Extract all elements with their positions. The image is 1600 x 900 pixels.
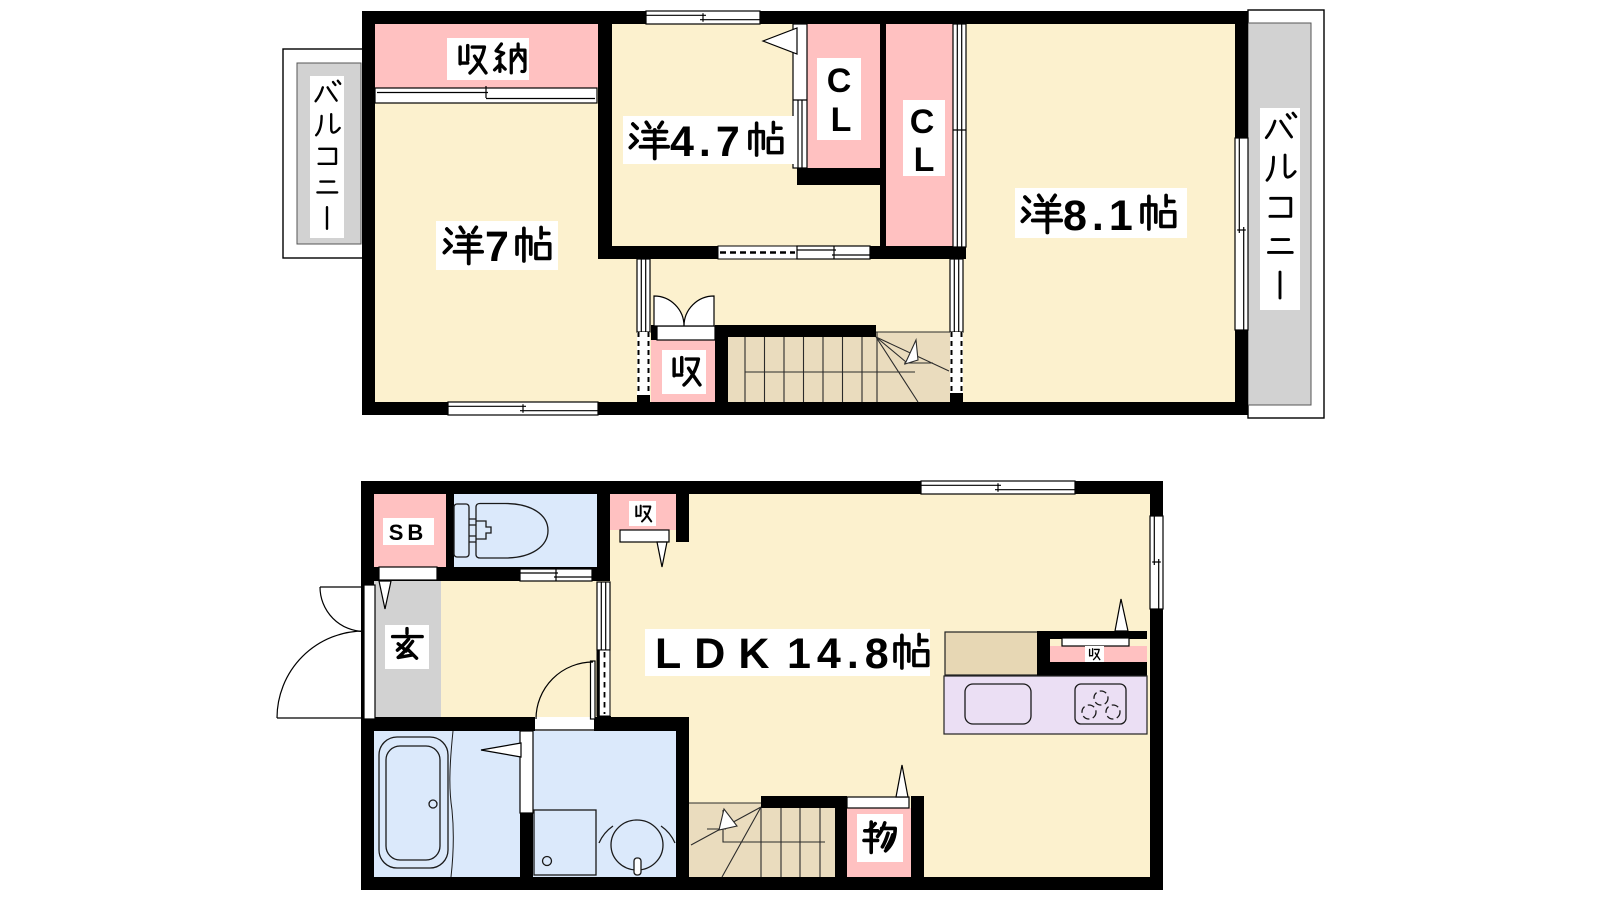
svg-text:L: L — [831, 101, 852, 139]
svg-text:14.8: 14.8 — [787, 630, 895, 678]
svg-text:SB: SB — [389, 520, 428, 545]
svg-text:C: C — [827, 62, 852, 100]
svg-text:LDK: LDK — [655, 630, 782, 678]
svg-text:C: C — [910, 103, 935, 141]
svg-text:7: 7 — [485, 223, 509, 271]
svg-text:8.1: 8.1 — [1063, 192, 1138, 240]
svg-text:4.7: 4.7 — [670, 118, 745, 166]
svg-text:L: L — [914, 141, 935, 179]
